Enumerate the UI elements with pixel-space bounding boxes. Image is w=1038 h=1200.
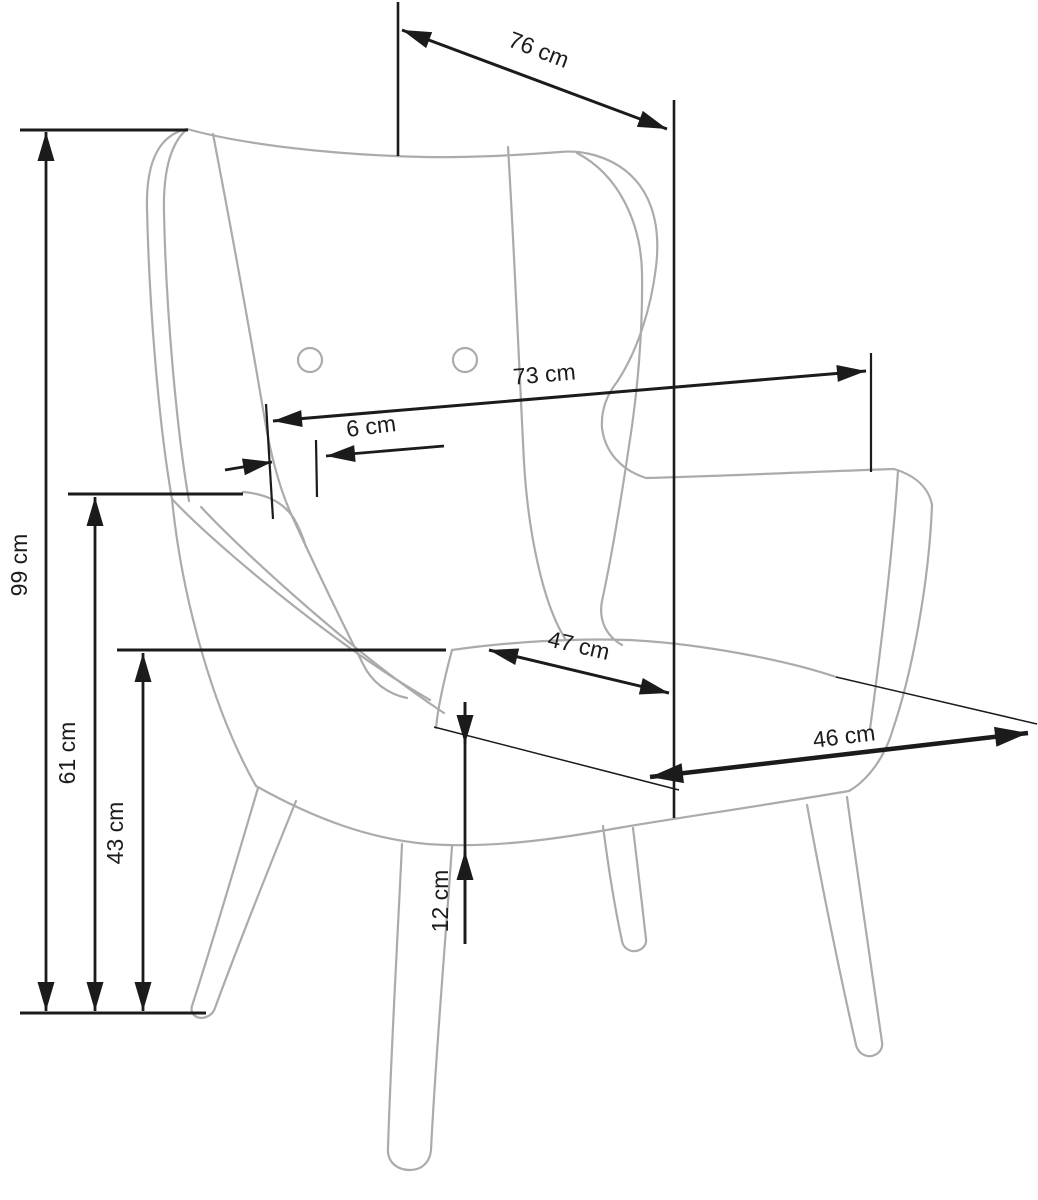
ext-line-seat-bottom-diagonal [434,727,679,790]
chair-left-armrest-inner-diagonal [201,507,444,713]
chair-rear-left-leg [192,788,296,1018]
dimension-seat-width: 46 cm [650,719,1028,777]
chair-left-armrest-outer-diagonal [172,499,430,700]
tick-back-offset [316,440,317,497]
chair-button-right [453,348,477,372]
dimension-front-edge-height: 12 cm [427,702,465,944]
dim-arrow-back-offset-left [225,462,272,470]
armchair-dimension-diagram: 99 cm 61 cm 43 cm 76 cm 73 cm 6 cm 47 cm… [0,0,1038,1200]
chair-back-panel-right-edge [508,147,566,640]
dim-label-back-offset: 6 cm [345,410,398,442]
chair-front-right-leg [807,797,882,1056]
chair-back-top-edge [187,129,614,163]
dimension-seat-depth: 47 cm [489,625,669,693]
dim-label-seat-height: 43 cm [102,802,128,865]
chair-right-wing-inner-edge [577,153,642,645]
dim-label-top-depth: 76 cm [505,26,573,73]
dimension-back-offset: 6 cm [225,410,444,470]
dim-label-total-depth: 73 cm [512,358,577,389]
chair-rear-right-leg [603,826,646,951]
dim-label-arm-height: 61 cm [54,722,80,785]
ext-line-seat-width-diagonal [836,677,1037,724]
dim-label-total-height: 99 cm [6,534,32,597]
chair-apron-bottom-edge [256,786,849,845]
dimension-top-depth: 76 cm [402,26,667,129]
chair-back-left-fold-edge [164,129,189,501]
chair-seat-front-top-edge [452,639,836,677]
dim-label-front-edge-height: 12 cm [427,870,453,933]
dimension-total-height: 99 cm [6,132,46,1011]
dim-label-seat-width: 46 cm [811,719,876,752]
dim-arrow-back-offset-right [326,446,444,456]
diagram-canvas: 99 cm 61 cm 43 cm 76 cm 73 cm 6 cm 47 cm… [0,0,1038,1200]
dim-label-seat-depth: 47 cm [545,625,612,664]
dimension-total-depth: 73 cm [273,358,866,421]
dimension-arm-height: 61 cm [54,497,95,1011]
chair-button-left [298,348,322,372]
chair-seat-left-corner [436,650,452,728]
dimension-seat-height: 43 cm [102,653,143,1011]
chair-right-armrest-top-edge [646,469,932,505]
chair-left-armrest-front-roll [243,492,306,547]
chair-left-side-lower-edge [172,499,256,786]
